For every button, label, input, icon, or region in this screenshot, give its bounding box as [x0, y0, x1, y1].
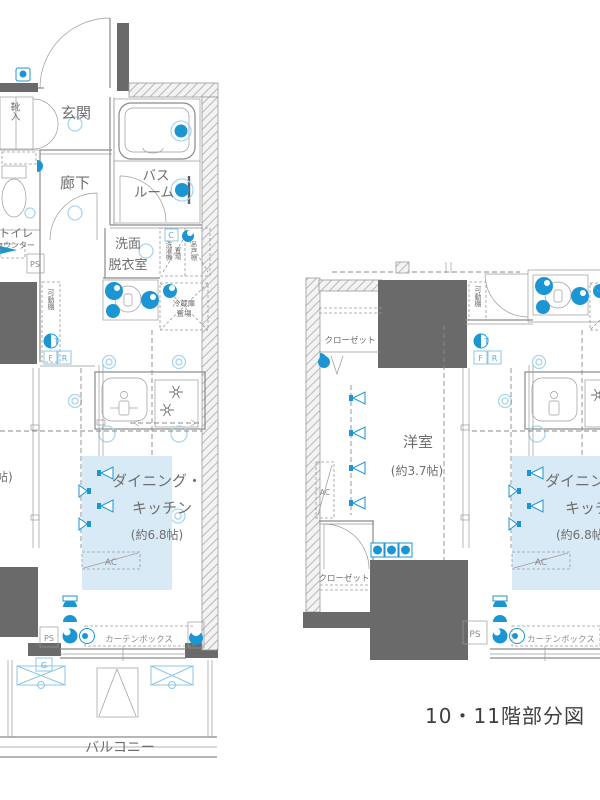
label-fridge-2: 置場	[177, 308, 192, 318]
label-closet-lower: クローゼット	[318, 573, 369, 584]
hallway-area	[50, 193, 97, 240]
right-floor-plan: クローゼット 可動棚 T F R 洋室 (約3.7帖) AC クローゼット ダイ…	[303, 262, 600, 661]
left-floor-plan: 玄関 靴入 廊下 バス ルーム トイレ カウンター 洗面 脱衣室 PS C 洗濯…	[0, 18, 218, 757]
label-curtain-box: カーテンボックス	[105, 635, 173, 645]
label-toilet-counter: カウンター	[0, 241, 35, 250]
label-right-dk-1: ダイニング・	[545, 472, 600, 490]
label-genkan: 玄関	[61, 104, 91, 122]
label-right-t-tag: T	[483, 337, 489, 346]
drain-slope-mark	[97, 668, 138, 717]
floorplan-page: 玄関 靴入 廊下 バス ルーム トイレ カウンター 洗面 脱衣室 PS C 洗濯…	[0, 0, 600, 800]
label-washroom-1: 洗面	[115, 237, 141, 252]
label-f-tag: F	[48, 354, 53, 363]
label-bath-1: バス	[143, 168, 170, 184]
label-right-f-tag: F	[478, 354, 483, 363]
label-right-ac-side: AC	[320, 488, 330, 497]
vanity-area	[103, 280, 159, 320]
label-ps-lower: PS	[44, 634, 54, 643]
label-ps-upper: PS	[30, 260, 40, 269]
label-movable-shelf: 可動棚	[47, 289, 55, 311]
western-room-speakers	[349, 385, 365, 515]
plan-break-lines	[332, 262, 520, 273]
bathroom-area	[110, 97, 202, 228]
label-r-tag: R	[62, 354, 68, 363]
label-hallway: 廊下	[60, 174, 90, 192]
label-dk-1: ダイニング・	[112, 472, 202, 490]
entrance-door	[38, 18, 110, 88]
label-right-ac-main: AC	[535, 558, 547, 568]
label-fridge-1: 冷蔵庫	[173, 298, 196, 308]
label-bath-2: ルーム	[134, 185, 174, 201]
plan-caption: 10・11階部分図	[425, 704, 585, 728]
intercom-icon	[16, 68, 30, 81]
label-right-dk-2: キッチン	[565, 499, 600, 517]
label-toilet: トイレ	[0, 226, 33, 240]
label-closet-upper: クローゼット	[324, 335, 375, 346]
label-right-ps: PS	[469, 630, 480, 640]
floorplan-canvas: 玄関 靴入 廊下 バス ルーム トイレ カウンター 洗面 脱衣室 PS C 洗濯…	[0, 0, 600, 800]
label-right-dk-size: (約6.8帖)	[556, 527, 600, 542]
label-western-room: 洋室	[403, 433, 433, 451]
planter-box-right	[151, 666, 193, 689]
right-vanity-area	[485, 270, 600, 322]
right-bottom-area	[463, 596, 600, 661]
label-g-tag: G	[41, 661, 47, 670]
right-kitchen-area	[525, 372, 600, 429]
label-dk-size: (約6.8帖)	[131, 527, 183, 542]
right-meter-stack	[493, 596, 525, 644]
label-shoe-cabinet: 靴入	[9, 101, 21, 121]
label-t-tag: T	[53, 337, 59, 346]
label-right-r-tag: R	[492, 354, 498, 363]
kitchen-area	[95, 372, 205, 429]
label-ac: AC	[105, 558, 117, 568]
meter-icons	[63, 596, 95, 644]
label-right-movable-shelf: 可動棚	[474, 286, 482, 308]
right-meter-row	[371, 543, 412, 557]
label-washer: 洗濯機	[164, 240, 172, 262]
label-washer-place: 置場	[173, 247, 181, 261]
label-washroom-2: 脱衣室	[108, 257, 147, 273]
label-cut-room-size: 帖)	[0, 469, 13, 484]
label-hanging-cupboard: 吊戸棚	[189, 241, 197, 262]
label-western-room-size: (約3.7帖)	[391, 463, 443, 478]
label-dk-2: キッチン	[132, 499, 192, 517]
label-balcony: バルコニー	[85, 740, 155, 756]
label-right-curtain-box: カーテンボックス	[527, 635, 595, 645]
label-c-tag: C	[168, 231, 174, 240]
